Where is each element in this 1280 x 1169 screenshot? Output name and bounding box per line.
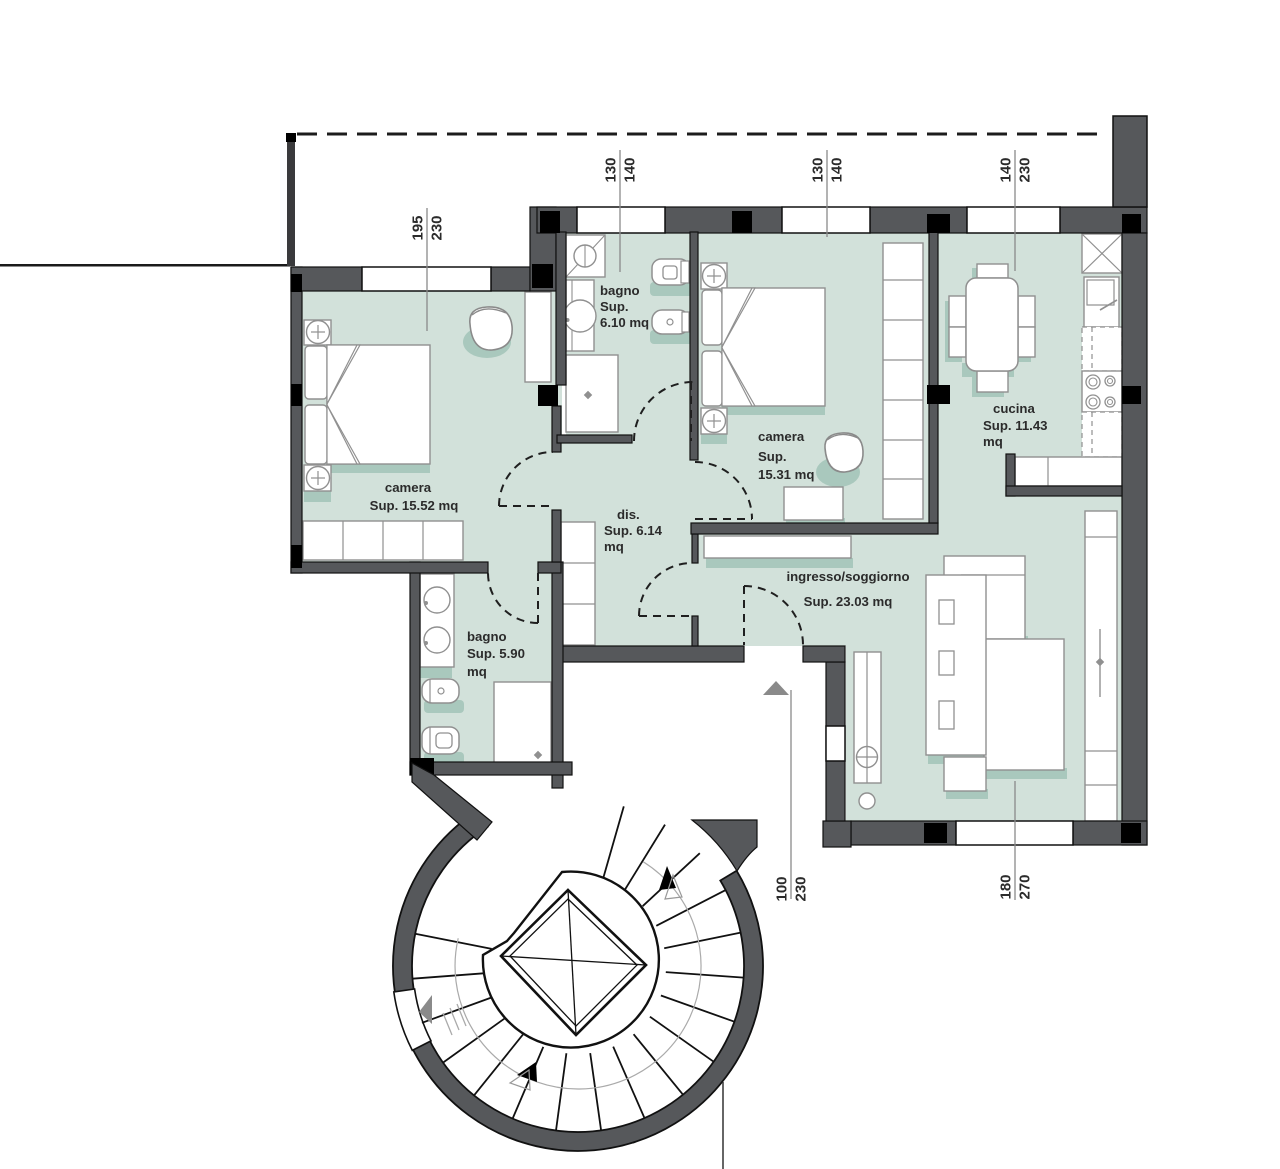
svg-text:Sup. 23.03 mq: Sup. 23.03 mq [804, 594, 893, 609]
svg-text:mq: mq [467, 664, 487, 679]
svg-text:180: 180 [998, 874, 1015, 899]
svg-text:Sup.: Sup. [600, 299, 629, 314]
svg-text:140: 140 [622, 157, 639, 182]
svg-text:Sup. 11.43: Sup. 11.43 [983, 418, 1048, 433]
svg-text:mq: mq [604, 539, 624, 554]
svg-text:bagno: bagno [467, 629, 507, 644]
svg-text:230: 230 [429, 215, 446, 240]
svg-text:140: 140 [998, 157, 1015, 182]
svg-text:100: 100 [774, 876, 791, 901]
svg-text:270: 270 [1017, 874, 1034, 899]
svg-text:camera: camera [385, 480, 432, 495]
svg-text:ingresso/soggiorno: ingresso/soggiorno [786, 569, 909, 584]
svg-text:Sup. 5.90: Sup. 5.90 [467, 646, 525, 661]
svg-text:Sup.: Sup. [758, 449, 787, 464]
svg-text:Sup. 6.14: Sup. 6.14 [604, 523, 663, 538]
svg-text:195: 195 [410, 215, 427, 240]
svg-text:15.31 mq: 15.31 mq [758, 467, 814, 482]
svg-text:mq: mq [983, 434, 1003, 449]
svg-text:camera: camera [758, 429, 805, 444]
svg-text:130: 130 [603, 157, 620, 182]
svg-text:Sup. 15.52 mq: Sup. 15.52 mq [370, 498, 459, 513]
svg-text:230: 230 [1017, 157, 1034, 182]
svg-text:140: 140 [829, 157, 846, 182]
svg-text:dis.: dis. [617, 507, 640, 522]
svg-text:6.10 mq: 6.10 mq [600, 315, 649, 330]
svg-text:130: 130 [810, 157, 827, 182]
svg-text:cucina: cucina [993, 401, 1035, 416]
svg-text:bagno: bagno [600, 283, 640, 298]
svg-text:230: 230 [793, 876, 810, 901]
